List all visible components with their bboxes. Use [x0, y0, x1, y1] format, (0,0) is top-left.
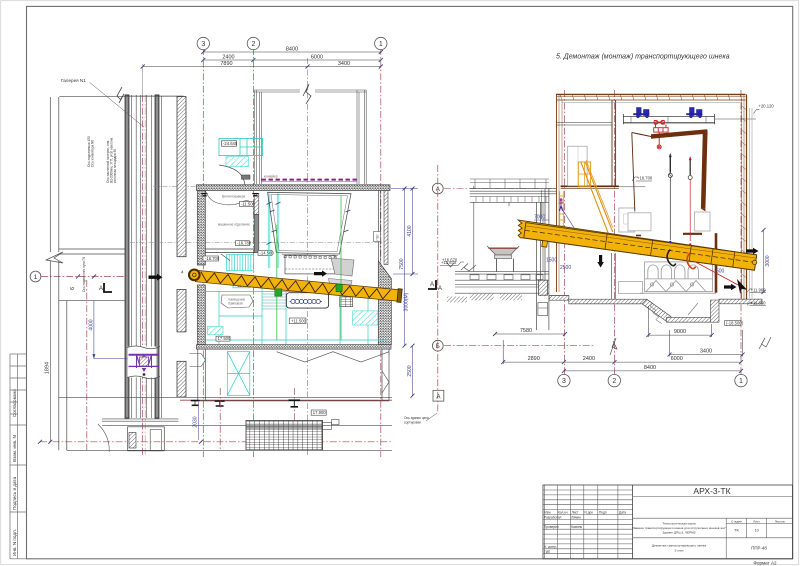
svg-text:А: А: [438, 286, 442, 292]
svg-text:-11.500: -11.500: [241, 202, 256, 207]
svg-text:Листов: Листов: [775, 519, 785, 523]
svg-text:Лист: Лист: [753, 519, 760, 523]
svg-text:+11.350: +11.350: [751, 301, 767, 306]
svg-text:Стадия: Стадия: [731, 519, 742, 523]
svg-text:Кол.уч: Кол.уч: [558, 510, 568, 514]
svg-text:1894: 1894: [45, 362, 51, 374]
svg-text:9000: 9000: [674, 329, 686, 335]
svg-text:2: 2: [251, 41, 255, 48]
svg-text:ГИП: ГИП: [544, 550, 551, 554]
svg-text:Разработал: Разработал: [544, 515, 561, 519]
svg-text:-24.645: -24.645: [223, 141, 238, 146]
svg-text:Н. контр.: Н. контр.: [544, 545, 557, 549]
svg-text:-14.500: -14.500: [260, 250, 275, 255]
svg-text:Галерея N1: Галерея N1: [61, 78, 86, 83]
svg-text:2400: 2400: [583, 356, 595, 362]
svg-text:6: 6: [70, 287, 76, 290]
svg-text:4100: 4100: [407, 225, 413, 236]
svg-text:А: А: [99, 286, 103, 292]
svg-text:Вентилокамера: Вентилокамера: [222, 195, 246, 199]
svg-text:10: 10: [754, 529, 758, 533]
svg-text:Инв. N подл.: Инв. N подл.: [12, 529, 17, 556]
svg-text:500: 500: [716, 269, 725, 275]
svg-text:3400: 3400: [700, 349, 712, 355]
svg-text:3000(М): 3000(М): [404, 292, 410, 311]
svg-text:7580: 7580: [520, 328, 532, 334]
svg-text:2890: 2890: [528, 356, 540, 362]
svg-text:Лямин: Лямин: [571, 515, 581, 519]
svg-text:5 этап: 5 этап: [675, 548, 684, 552]
svg-text:Ось подвесного пути Г6: Ось подвесного пути Г6: [82, 257, 86, 292]
svg-text:17.500: 17.500: [218, 336, 231, 341]
svg-text:3: 3: [562, 378, 566, 385]
svg-text:Ось конвейера N6: Ось конвейера N6: [91, 140, 95, 167]
svg-text:Демонтаж транспортирующего шне: Демонтаж транспортирующего шнека: [652, 544, 706, 548]
svg-text:Лист: Лист: [572, 510, 579, 514]
svg-text:Казюль: Казюль: [571, 525, 582, 529]
svg-text:+11.500: +11.500: [291, 318, 307, 323]
svg-text:ПВУ: ПВУ: [376, 233, 380, 240]
svg-text:4000: 4000: [88, 319, 94, 330]
svg-text:колонная площадка 30: колонная площадка 30: [113, 149, 117, 183]
svg-text:1: 1: [379, 41, 383, 48]
svg-text:Взам. инв. N: Взам. инв. N: [12, 435, 17, 462]
svg-text:1: 1: [739, 378, 743, 385]
svg-text:-16.780: -16.780: [237, 241, 252, 246]
svg-text:+11.960: +11.960: [751, 287, 767, 292]
svg-text:7000: 7000: [534, 215, 545, 221]
svg-text:Подпись и дата: Подпись и дата: [12, 477, 17, 510]
svg-text:Формат А2: Формат А2: [753, 560, 777, 565]
svg-text:+16.700: +16.700: [637, 176, 653, 181]
svg-text:машинное отделение: машинное отделение: [218, 223, 250, 227]
svg-text:7500: 7500: [399, 258, 405, 269]
svg-text:2500: 2500: [560, 265, 571, 271]
svg-text:Дата: Дата: [619, 510, 626, 514]
svg-text:+20.120: +20.120: [759, 104, 775, 109]
svg-text:2: 2: [612, 378, 616, 385]
svg-text:ТК: ТК: [734, 529, 739, 533]
svg-text:1500: 1500: [546, 258, 557, 264]
svg-text:2030: 2030: [193, 416, 199, 427]
svg-text:Ось здания цеха: Ось здания цеха: [404, 416, 429, 420]
svg-text:Ламповая: Ламповая: [228, 302, 243, 306]
svg-text:6000: 6000: [671, 356, 683, 362]
svg-text:8400: 8400: [644, 365, 656, 371]
svg-text:АРХ-3-ТК: АРХ-3-ТК: [693, 486, 730, 496]
svg-text:Согласовано: Согласовано: [12, 389, 17, 417]
svg-text:А: А: [430, 282, 434, 288]
svg-text:3000: 3000: [765, 255, 771, 266]
svg-text:Подп: Подп: [599, 510, 607, 514]
svg-text:N док: N док: [585, 510, 594, 514]
svg-text:3: 3: [201, 41, 205, 48]
svg-text:17.900: 17.900: [313, 410, 326, 415]
svg-text:Технологическая карта: Технологическая карта: [662, 522, 695, 526]
svg-text:сортировки: сортировки: [404, 421, 421, 425]
svg-text:конвейер: конвейер: [264, 175, 278, 179]
svg-text:1: 1: [34, 274, 38, 281]
svg-text:6000: 6000: [311, 55, 323, 61]
svg-text:2500: 2500: [407, 365, 413, 376]
svg-text:(-18.500): (-18.500): [726, 321, 744, 326]
svg-text:Проверил: Проверил: [544, 525, 559, 529]
svg-text:-16.700: -16.700: [205, 256, 220, 261]
svg-text:7890: 7890: [220, 61, 232, 67]
svg-text:ППР-48: ППР-48: [751, 546, 767, 551]
svg-text:Изм: Изм: [545, 510, 551, 514]
svg-text:3400: 3400: [338, 61, 350, 67]
svg-text:8400: 8400: [286, 47, 298, 53]
svg-text:Здание ДПЦ-3, ЧЕРМЗ: Здание ДПЦ-3, ЧЕРМЗ: [662, 530, 695, 534]
svg-text:+16.670: +16.670: [441, 260, 457, 265]
svg-text:5. Демонтаж (монтаж) транспорт: 5. Демонтаж (монтаж) транспортирующего ш…: [556, 54, 730, 61]
svg-text:2400: 2400: [222, 55, 234, 61]
